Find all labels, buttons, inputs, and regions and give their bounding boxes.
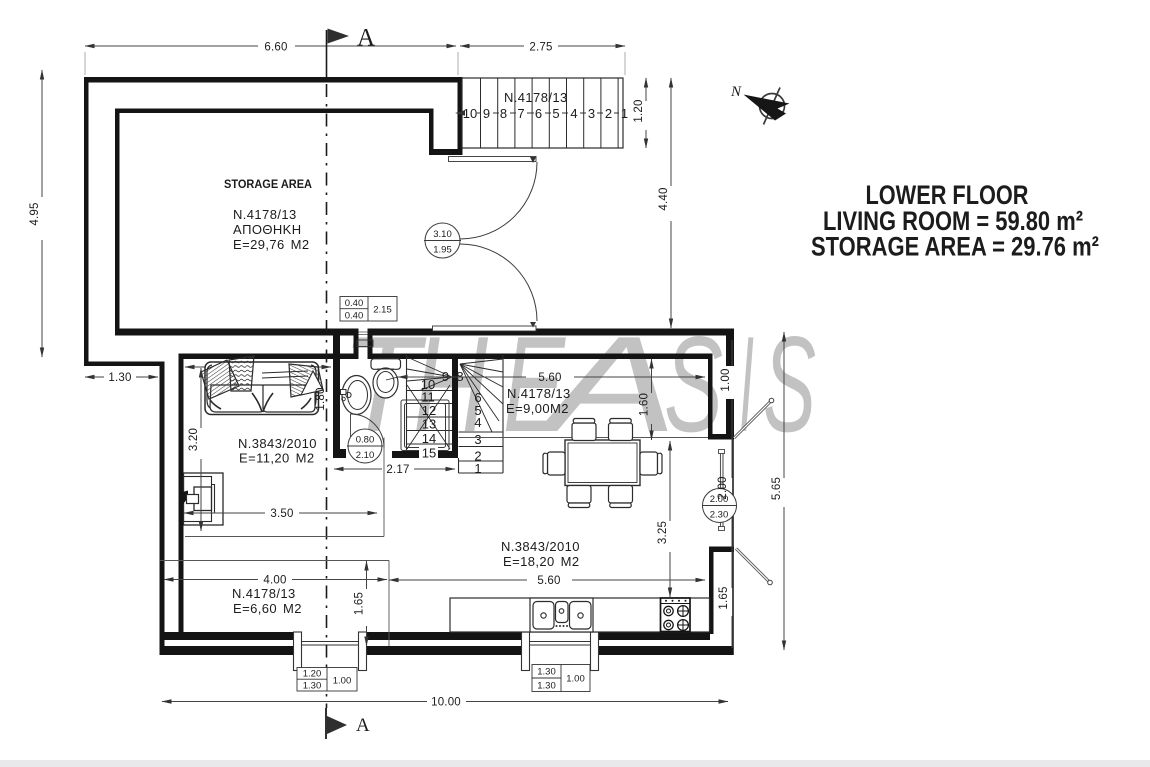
svg-text:5: 5 — [552, 106, 559, 121]
svg-text:1.00: 1.00 — [333, 676, 352, 687]
svg-text:N.3843/2010: N.3843/2010 — [501, 539, 580, 554]
svg-text:7: 7 — [517, 106, 524, 121]
svg-text:1.00: 1.00 — [566, 674, 585, 685]
svg-text:E=9,00M2: E=9,00M2 — [506, 401, 569, 416]
svg-text:I: I — [739, 308, 754, 460]
svg-text:2: 2 — [605, 106, 612, 121]
svg-text:3: 3 — [588, 106, 595, 121]
svg-text:2.15: 2.15 — [373, 305, 392, 316]
svg-text:10: 10 — [463, 106, 477, 121]
svg-text:E=11,20 M2: E=11,20 M2 — [239, 451, 315, 466]
svg-text:1.60: 1.60 — [639, 393, 651, 416]
svg-text:A: A — [357, 25, 375, 52]
svg-text:3: 3 — [474, 432, 481, 447]
svg-text:0.40: 0.40 — [345, 311, 364, 322]
svg-text:1.20: 1.20 — [303, 669, 322, 680]
svg-text:1: 1 — [474, 461, 481, 476]
svg-text:6: 6 — [535, 106, 542, 121]
svg-text:3.10: 3.10 — [433, 229, 452, 240]
svg-text:4.40: 4.40 — [658, 187, 670, 210]
svg-text:4.95: 4.95 — [29, 202, 41, 225]
svg-text:N.4178/13: N.4178/13 — [507, 386, 571, 401]
svg-text:3.50: 3.50 — [270, 508, 293, 520]
svg-text:4: 4 — [474, 415, 481, 430]
svg-text:1.95: 1.95 — [433, 245, 452, 256]
svg-text:1: 1 — [621, 106, 628, 121]
svg-text:N.3843/2010: N.3843/2010 — [238, 436, 317, 451]
svg-text:2.00: 2.00 — [717, 476, 729, 499]
svg-text:9: 9 — [483, 106, 490, 121]
svg-text:1.30: 1.30 — [108, 372, 131, 384]
svg-text:5.65: 5.65 — [771, 477, 783, 500]
svg-text:1.30: 1.30 — [537, 681, 556, 692]
svg-text:1.20: 1.20 — [633, 99, 645, 122]
svg-text:10.00: 10.00 — [431, 697, 461, 709]
svg-text:4: 4 — [570, 106, 577, 121]
svg-text:3.20: 3.20 — [188, 428, 200, 451]
svg-text:E=6,60 M2: E=6,60 M2 — [233, 601, 302, 616]
svg-text:2.17: 2.17 — [386, 464, 409, 476]
svg-text:1.65: 1.65 — [718, 586, 730, 609]
svg-text:STORAGE AREA = 29.76 m²: STORAGE AREA = 29.76 m² — [811, 232, 1099, 262]
svg-text:N.4178/13: N.4178/13 — [233, 207, 297, 222]
svg-text:ΑΠΟΘΗΚΗ: ΑΠΟΘΗΚΗ — [233, 222, 302, 237]
svg-text:2.10: 2.10 — [356, 450, 375, 461]
svg-text:4.00: 4.00 — [263, 575, 286, 587]
svg-text:1.30: 1.30 — [537, 667, 556, 678]
svg-text:14: 14 — [422, 431, 436, 446]
svg-text:N.4178/13: N.4178/13 — [504, 90, 568, 105]
svg-text:A: A — [356, 715, 370, 736]
svg-text:1.80: 1.80 — [315, 387, 327, 410]
svg-text:5.60: 5.60 — [537, 575, 560, 587]
svg-text:0.40: 0.40 — [345, 298, 364, 309]
svg-text:N: N — [730, 84, 742, 100]
svg-text:1.65: 1.65 — [354, 592, 366, 615]
svg-text:13: 13 — [422, 417, 436, 432]
svg-text:1.30: 1.30 — [303, 681, 322, 692]
svg-text:15: 15 — [422, 446, 436, 461]
svg-text:N.4178/13: N.4178/13 — [232, 586, 296, 601]
svg-text:2.30: 2.30 — [710, 510, 729, 521]
svg-text:S: S — [763, 308, 816, 460]
svg-text:E=18,20 M2: E=18,20 M2 — [503, 554, 579, 569]
svg-text:3.25: 3.25 — [657, 521, 669, 544]
svg-text:STORAGE AREA: STORAGE AREA — [224, 177, 312, 191]
svg-text:E=29,76 M2: E=29,76 M2 — [233, 237, 309, 252]
svg-text:6.60: 6.60 — [264, 42, 287, 54]
svg-text:5.60: 5.60 — [538, 372, 561, 384]
svg-text:2.75: 2.75 — [529, 42, 552, 54]
svg-text:1.00: 1.00 — [720, 368, 732, 391]
svg-text:8: 8 — [500, 106, 507, 121]
svg-text:0.80: 0.80 — [356, 435, 375, 446]
